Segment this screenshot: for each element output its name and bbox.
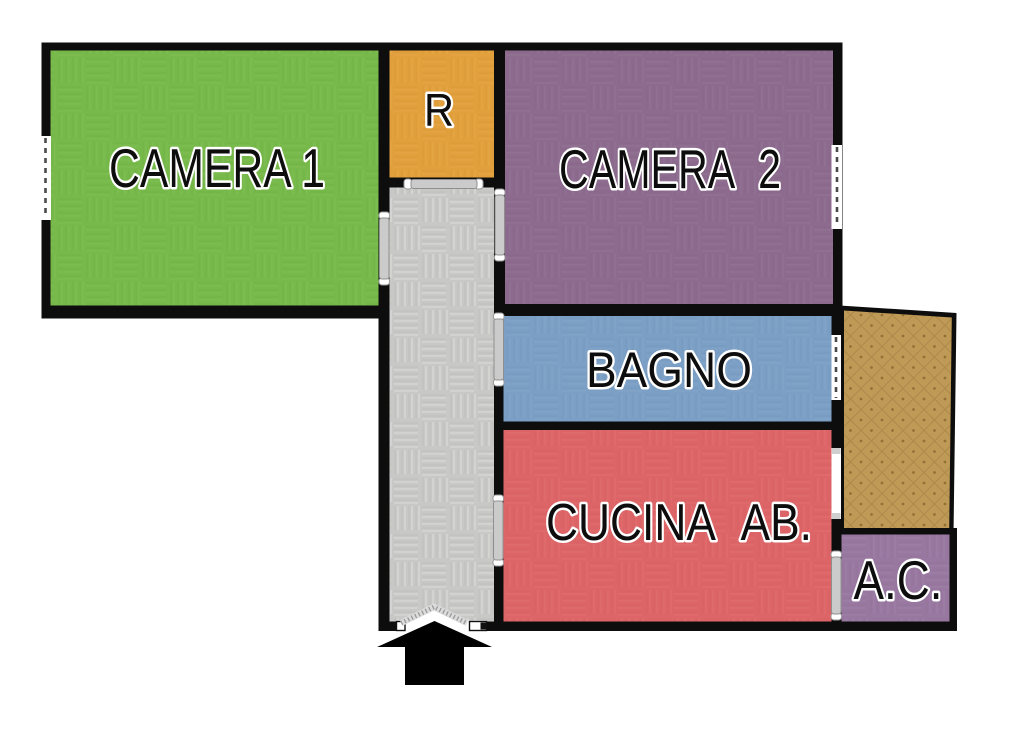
- svg-text:CAMERA 1: CAMERA 1: [109, 137, 325, 199]
- svg-text:BAGNO: BAGNO: [586, 342, 752, 398]
- svg-text:A.C.: A.C.: [854, 549, 943, 611]
- svg-text:CAMERA 2: CAMERA 2: [559, 138, 781, 200]
- svg-text:CUCINA AB.: CUCINA AB.: [546, 494, 812, 552]
- svg-text:R: R: [424, 84, 454, 136]
